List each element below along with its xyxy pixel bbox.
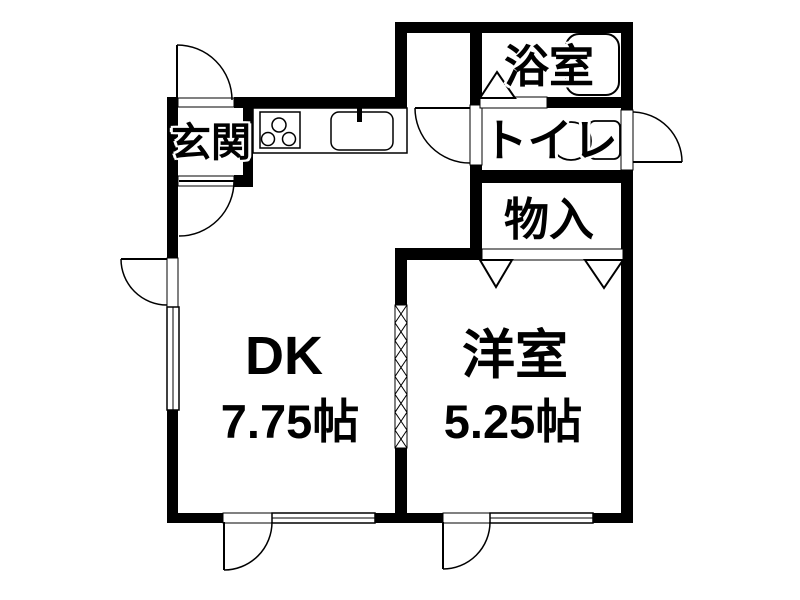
western-bottom-door-arc xyxy=(443,522,490,569)
storage-door-bar xyxy=(482,249,623,260)
wall-vertical-connector xyxy=(395,22,407,108)
wall-genkan-bottom-right xyxy=(234,175,253,187)
left-door-arc xyxy=(121,259,167,305)
wall-bath-bottom xyxy=(547,97,633,108)
wall-bottom-middle xyxy=(375,513,443,523)
kitchen-counter xyxy=(253,104,407,153)
stove-burner-top xyxy=(272,118,286,132)
western-bottom-door-opening xyxy=(443,513,490,523)
room-size-dk: 7.75帖 xyxy=(170,396,410,448)
wall-partition-upper xyxy=(395,248,407,305)
faucet-icon xyxy=(357,104,362,122)
wall-partition-lower xyxy=(395,448,407,513)
floor-plan: 玄関 浴室 トイレ 物入 DK 7.75帖 洋室 5.25帖 xyxy=(0,0,800,600)
left-door-opening xyxy=(167,258,178,307)
toilet-right-door-arc xyxy=(633,112,682,162)
genkan-dk-door-arc xyxy=(179,181,234,236)
entrance-door-arc xyxy=(177,45,232,100)
room-label-storage: 物入 xyxy=(469,195,629,245)
storage-door-triangle-left xyxy=(480,260,512,287)
room-label-western-room: 洋室 xyxy=(435,328,595,384)
room-size-western-room: 5.25帖 xyxy=(393,396,633,448)
wall-genkan-bottom-left xyxy=(167,175,178,187)
room-label-genkan: 玄関 xyxy=(151,120,271,166)
stove-burner-right xyxy=(283,133,296,146)
room-label-toilet: トイレ xyxy=(460,116,640,166)
room-label-bathroom: 浴室 xyxy=(469,42,629,92)
dk-bottom-door-arc xyxy=(224,522,272,570)
room-label-dk: DK xyxy=(204,328,364,384)
wall-bottom-left xyxy=(167,513,223,523)
dk-bottom-door-opening xyxy=(223,513,272,523)
wall-top-dk xyxy=(234,97,407,108)
wall-western-top xyxy=(395,248,482,260)
entrance-door-opening xyxy=(178,98,234,107)
storage-door-triangle-right xyxy=(585,260,623,288)
wall-top-upper-block xyxy=(395,22,633,33)
floor-plan-drawing xyxy=(0,0,800,600)
wall-toilet-storage xyxy=(470,170,633,183)
